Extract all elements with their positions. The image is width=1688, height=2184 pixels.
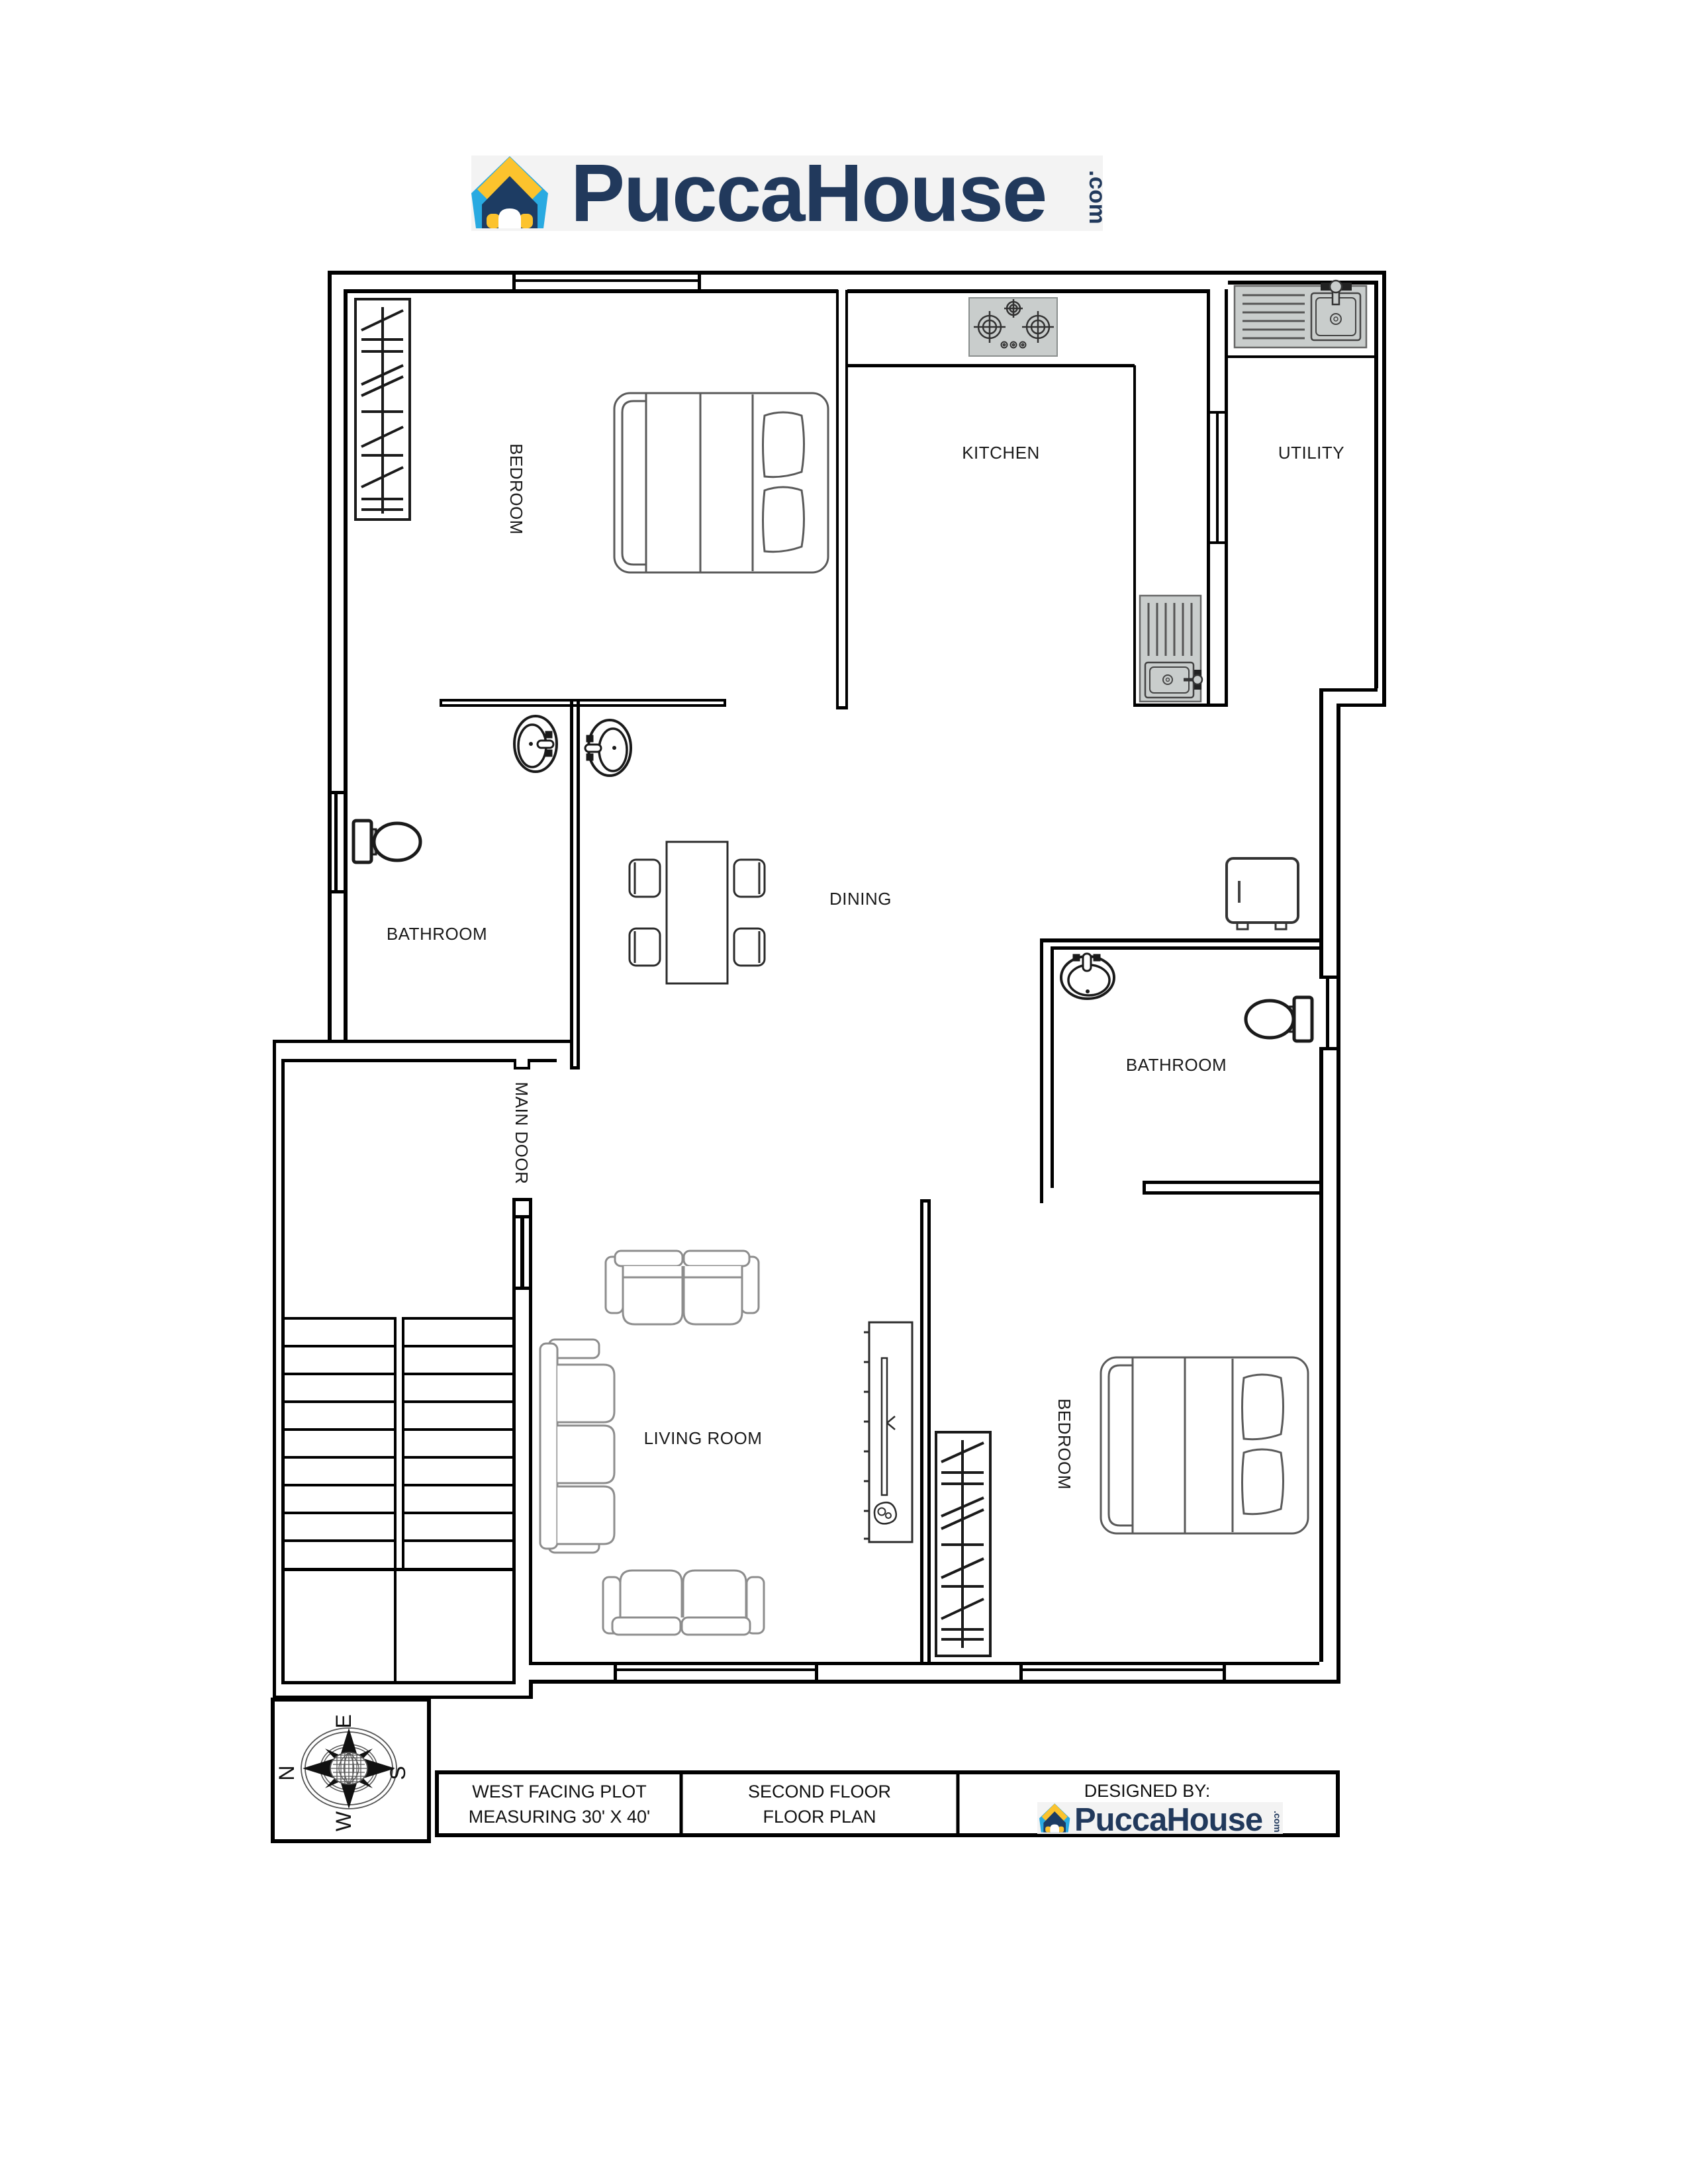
svg-text:E: E [332, 1714, 355, 1728]
svg-text:.com: .com [1084, 170, 1110, 224]
svg-text:N: N [275, 1765, 299, 1780]
svg-text:UTILITY: UTILITY [1278, 443, 1344, 463]
svg-text:W: W [332, 1811, 355, 1831]
svg-text:BEDROOM: BEDROOM [506, 443, 526, 535]
svg-text:SECOND FLOOR: SECOND FLOOR [748, 1782, 891, 1801]
svg-text:MEASURING 30' X 40': MEASURING 30' X 40' [469, 1807, 650, 1827]
svg-text:LIVING ROOM: LIVING ROOM [644, 1428, 763, 1448]
svg-text:PuccaHouse: PuccaHouse [1074, 1802, 1262, 1838]
svg-text:.com: .com [1272, 1811, 1283, 1833]
svg-text:FLOOR PLAN: FLOOR PLAN [763, 1807, 876, 1827]
svg-text:S: S [386, 1766, 410, 1780]
svg-text:PuccaHouse: PuccaHouse [571, 148, 1046, 239]
svg-text:BATHROOM: BATHROOM [387, 924, 487, 944]
svg-text:KITCHEN: KITCHEN [962, 443, 1040, 463]
svg-text:BEDROOM: BEDROOM [1055, 1398, 1074, 1490]
svg-text:MAIN DOOR: MAIN DOOR [512, 1082, 532, 1185]
svg-text:DINING: DINING [829, 889, 892, 909]
svg-text:BATHROOM: BATHROOM [1126, 1055, 1227, 1075]
svg-text:WEST FACING PLOT: WEST FACING PLOT [472, 1782, 647, 1801]
svg-text:DESIGNED BY:: DESIGNED BY: [1084, 1781, 1211, 1801]
